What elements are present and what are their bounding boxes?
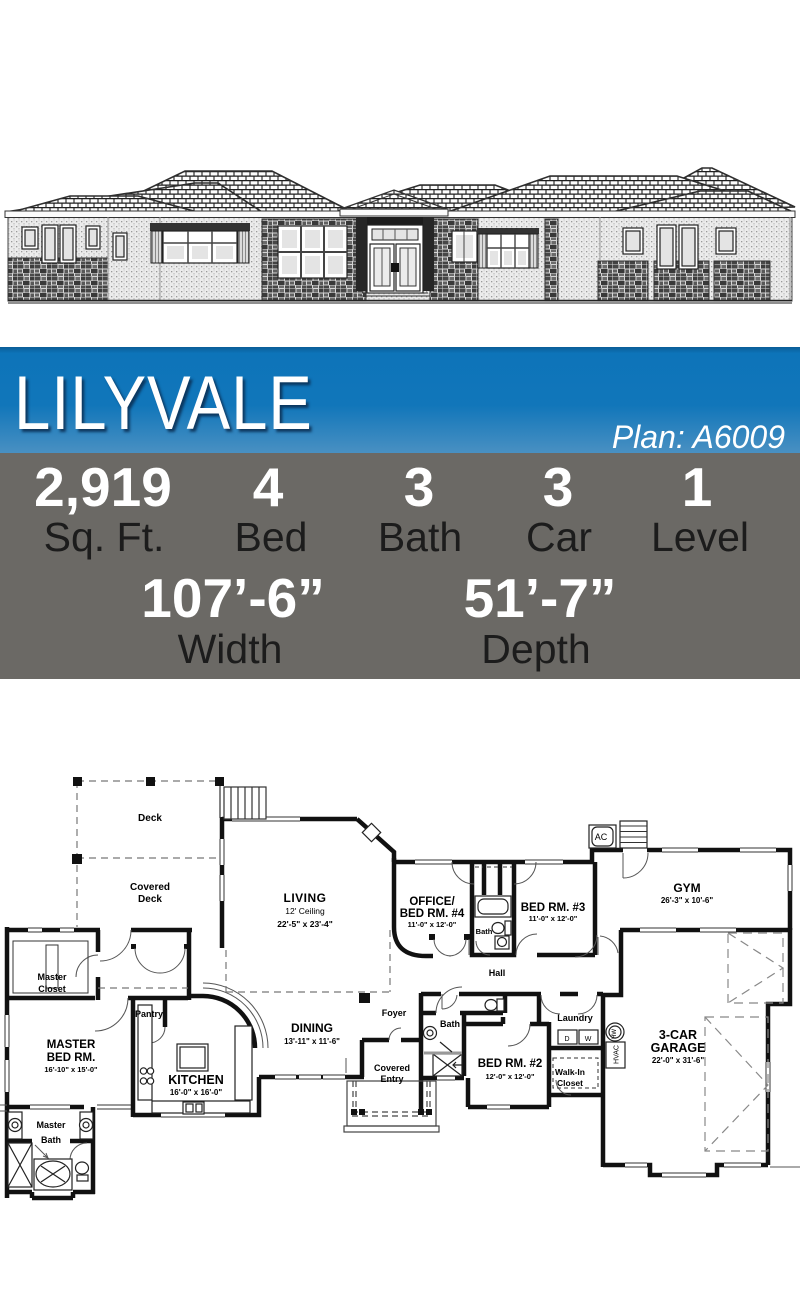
svg-text:BED RM. #3: BED RM. #3 <box>521 902 586 914</box>
svg-text:AC: AC <box>595 832 608 842</box>
svg-text:22'-0" x 31'-6": 22'-0" x 31'-6" <box>652 1056 705 1065</box>
svg-text:16'-10" x 15'-0": 16'-10" x 15'-0" <box>44 1065 98 1074</box>
svg-text:26'-3" x 10'-6": 26'-3" x 10'-6" <box>661 896 714 905</box>
svg-text:12' Ceiling: 12' Ceiling <box>285 906 325 916</box>
svg-text:Laundry: Laundry <box>557 1013 593 1023</box>
svg-text:HVAC: HVAC <box>614 1045 621 1064</box>
svg-text:KITCHEN: KITCHEN <box>168 1073 224 1087</box>
svg-text:Hall: Hall <box>489 968 506 978</box>
svg-text:Bath: Bath <box>440 1019 460 1029</box>
svg-text:D: D <box>564 1036 569 1043</box>
svg-text:Pantry: Pantry <box>135 1009 163 1019</box>
svg-text:BED RM.: BED RM. <box>47 1052 96 1064</box>
svg-text:11'-0" x 12'-0": 11'-0" x 12'-0" <box>408 920 457 929</box>
svg-text:GARAGE: GARAGE <box>651 1041 706 1055</box>
svg-text:11'-0" x 12'-0": 11'-0" x 12'-0" <box>529 914 578 923</box>
svg-text:16'-0" x 16'-0": 16'-0" x 16'-0" <box>170 1088 223 1097</box>
svg-text:Deck: Deck <box>138 813 162 824</box>
svg-text:OFFICE/: OFFICE/ <box>409 896 455 908</box>
svg-text:Walk-In: Walk-In <box>555 1067 585 1077</box>
svg-text:GYM: GYM <box>673 881 700 895</box>
svg-text:Deck: Deck <box>138 894 162 905</box>
svg-text:Covered: Covered <box>130 882 170 893</box>
svg-text:Covered: Covered <box>374 1063 410 1073</box>
svg-text:BED RM. #2: BED RM. #2 <box>478 1058 543 1070</box>
svg-text:Entry: Entry <box>380 1074 403 1084</box>
svg-text:Master: Master <box>37 972 67 982</box>
svg-text:Foyer: Foyer <box>382 1008 407 1018</box>
svg-text:13'-11" x 11'-6": 13'-11" x 11'-6" <box>284 1037 340 1046</box>
svg-text:MASTER: MASTER <box>47 1039 96 1051</box>
svg-text:22'-5" x 23'-4": 22'-5" x 23'-4" <box>277 919 333 929</box>
svg-text:HW: HW <box>612 1029 618 1039</box>
svg-text:Master: Master <box>36 1120 66 1130</box>
svg-text:12'-0" x 12'-0": 12'-0" x 12'-0" <box>485 1072 534 1081</box>
svg-text:Closet: Closet <box>557 1078 583 1088</box>
svg-text:DINING: DINING <box>291 1021 333 1035</box>
svg-text:Bath: Bath <box>476 927 493 936</box>
svg-text:Bath: Bath <box>41 1135 61 1145</box>
svg-text:3-CAR: 3-CAR <box>659 1028 697 1042</box>
svg-text:LIVING: LIVING <box>283 891 326 905</box>
svg-text:W: W <box>585 1036 592 1043</box>
svg-text:Closet: Closet <box>38 984 66 994</box>
svg-text:BED RM. #4: BED RM. #4 <box>400 908 465 920</box>
